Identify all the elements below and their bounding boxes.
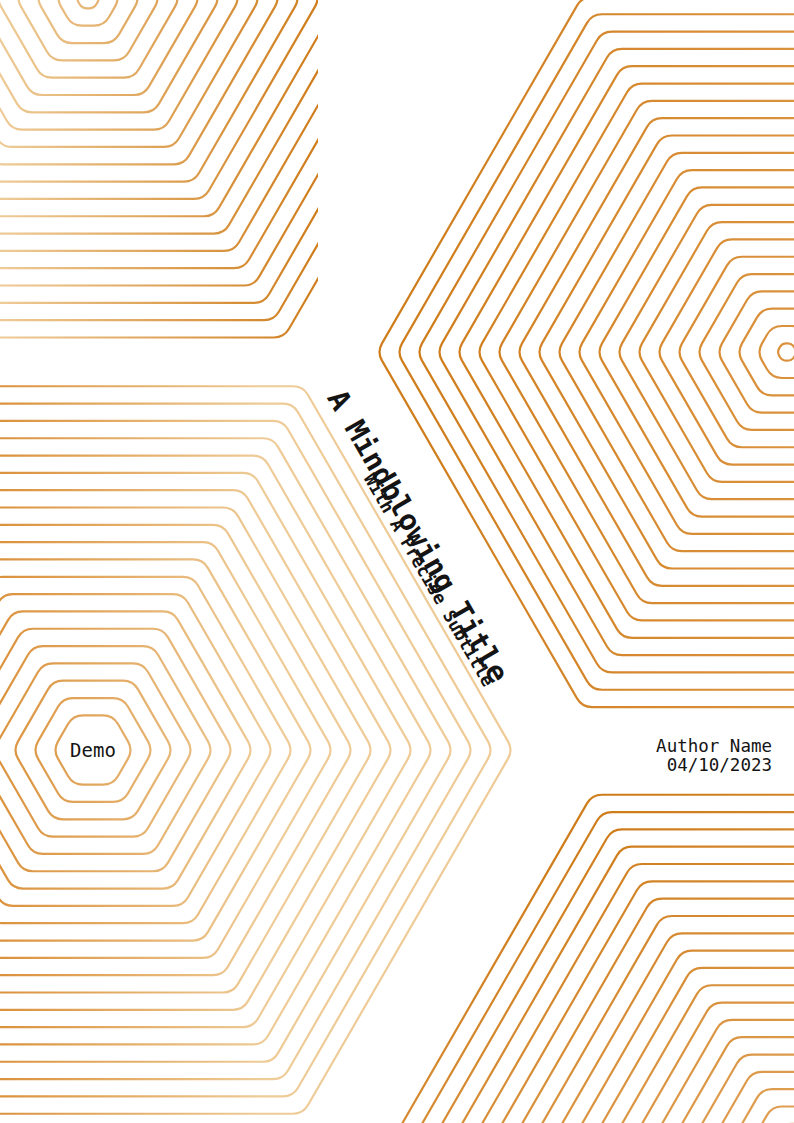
hexagon-pattern-top-left (0, 0, 478, 337)
document-date: 04/10/2023 (656, 756, 772, 775)
hexagon-pattern-background (0, 0, 794, 1123)
author-block: Author Name 04/10/2023 (656, 737, 772, 775)
author-name: Author Name (656, 737, 772, 756)
hexagon-pattern-bottom-right (387, 795, 794, 1123)
demo-label: Demo (70, 739, 116, 761)
